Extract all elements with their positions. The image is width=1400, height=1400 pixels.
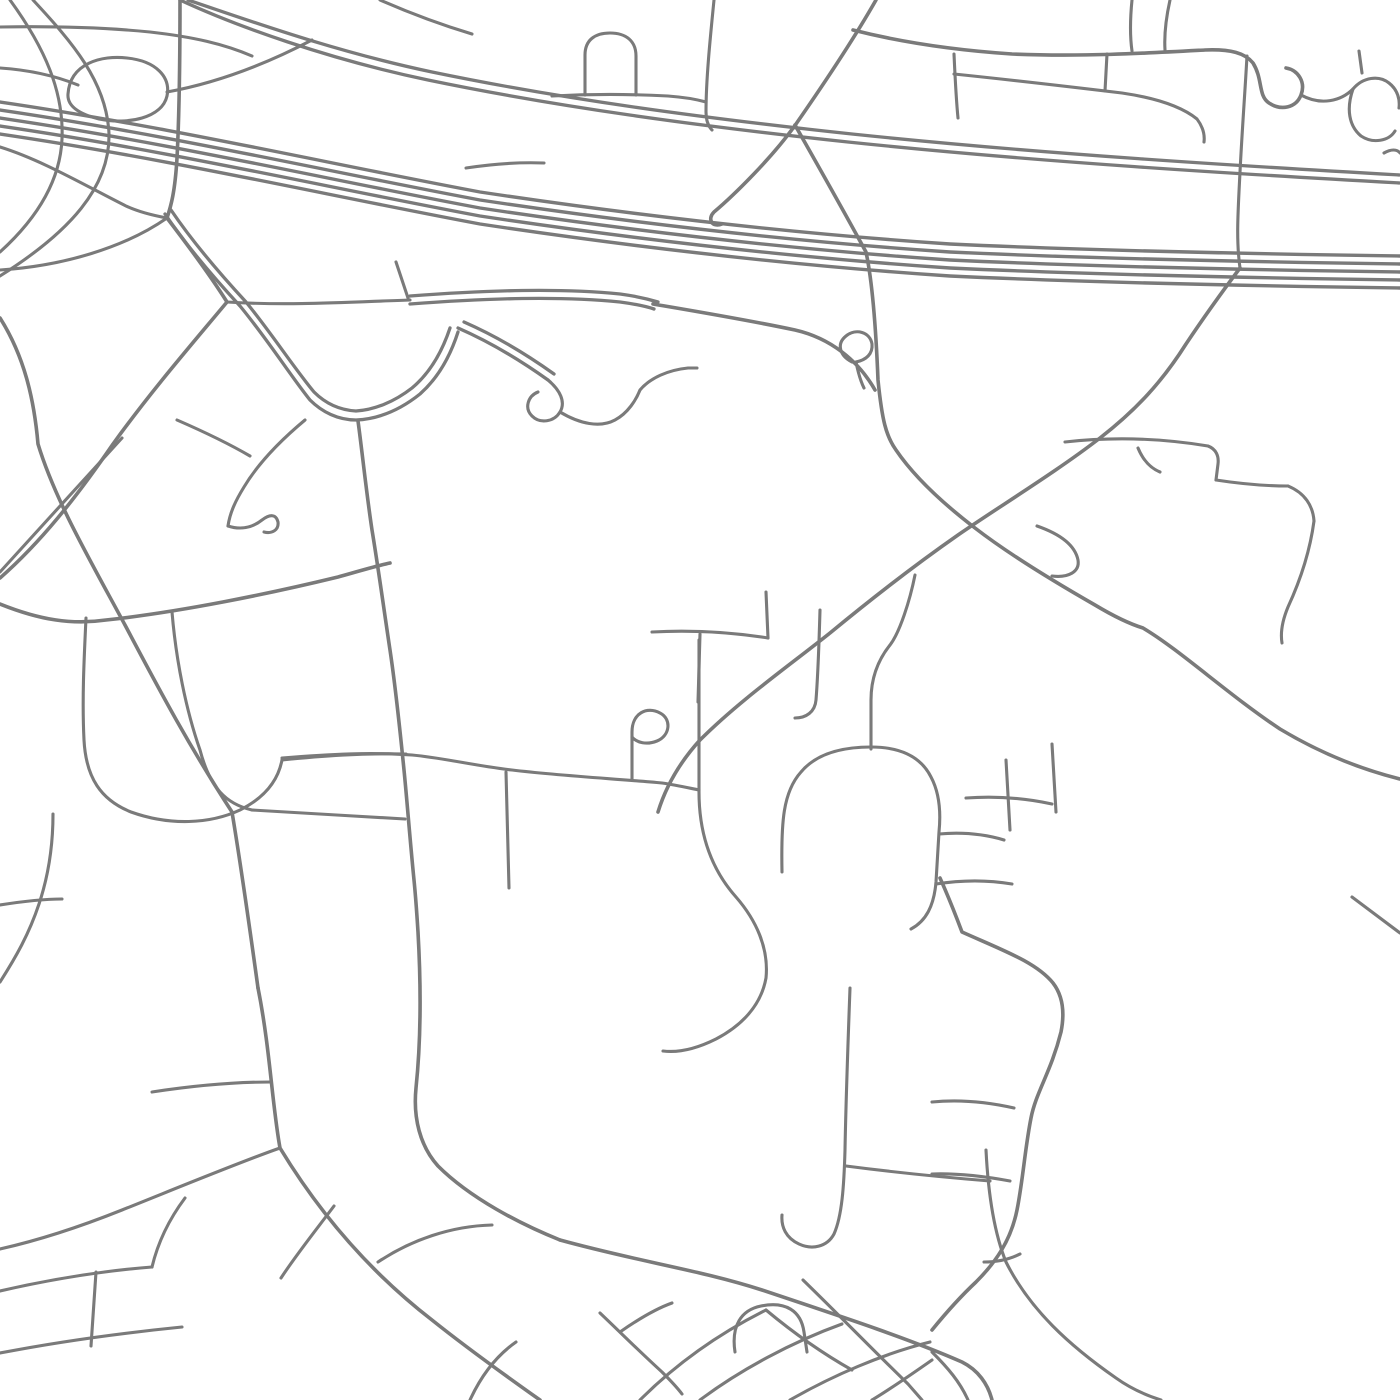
road-segment-local-roads <box>282 754 699 790</box>
road-segment-local-roads <box>939 833 1004 840</box>
road-segment-local-roads <box>281 1206 334 1278</box>
road-segment-local-roads <box>766 592 768 638</box>
road-segment-local-roads <box>663 640 766 1052</box>
road-segment-local-roads <box>632 710 668 780</box>
road-segment-local-roads <box>790 1342 930 1400</box>
road-segment-local-roads <box>1352 897 1400 933</box>
road-segment-local-roads <box>782 747 940 929</box>
road-segment-local-roads <box>1165 0 1170 50</box>
road-segment-local-roads <box>172 612 252 810</box>
road-segment-major-roads <box>167 218 227 302</box>
road-segment-local-roads <box>1349 89 1395 141</box>
road-segment-local-roads <box>856 362 864 388</box>
road-segment-local-roads <box>840 332 872 362</box>
road-segment-local-roads <box>1288 486 1314 521</box>
road-segment-local-roads <box>600 1313 682 1394</box>
road-segment-local-roads <box>1006 760 1010 830</box>
road-segment-local-roads <box>1037 526 1078 576</box>
road-segment-local-roads <box>506 772 509 888</box>
road-segment-local-roads <box>228 516 278 533</box>
road-segment-local-roads <box>782 988 850 1247</box>
road-segment-local-roads <box>986 1150 1161 1400</box>
road-segment-local-roads <box>954 74 1204 142</box>
road-segment-freeway-carriageways <box>0 126 1400 280</box>
road-segment-local-roads <box>0 1267 152 1291</box>
road-segment-local-roads <box>83 618 282 822</box>
road-segment-local-roads <box>252 810 405 819</box>
road-segment-local-roads <box>932 1352 968 1400</box>
road-segment-local-roads <box>1384 150 1400 153</box>
road-segment-local-roads <box>871 575 915 749</box>
road-segment-local-roads <box>380 0 472 34</box>
road-segment-local-roads <box>396 262 408 298</box>
road-segment-local-roads <box>954 54 958 118</box>
road-segment-major-roads <box>853 30 1303 107</box>
road-segment-major-roads <box>0 563 390 622</box>
road-segment-local-roads <box>795 610 820 718</box>
road-segment-local-roads <box>152 1082 271 1092</box>
road-segment-local-roads <box>1138 448 1160 472</box>
road-segment-local-roads <box>0 68 78 85</box>
road-segment-major-roads <box>0 318 258 988</box>
road-segment-freeway-carriageways <box>0 110 1400 264</box>
road-segment-local-roads <box>1238 56 1247 268</box>
road-segment-major-roads <box>795 125 1400 779</box>
road-segment-freeway-carriageways <box>0 134 1400 288</box>
road-segment-local-roads <box>1052 744 1056 812</box>
road-segment-local-roads <box>0 814 53 982</box>
road-segment-local-roads <box>228 420 305 526</box>
map-viewport <box>0 0 1400 1400</box>
road-segment-local-roads <box>152 1198 185 1267</box>
road-segment-local-roads <box>91 1272 96 1346</box>
road-segment-local-roads <box>766 1310 852 1370</box>
road-segment-major-roads <box>167 0 180 218</box>
road-segment-local-roads <box>652 631 768 638</box>
road-segment-divided-highway <box>180 0 1400 183</box>
road-segment-divided-highway <box>171 210 450 411</box>
road-segment-local-roads <box>936 881 1012 884</box>
road-segment-major-roads <box>711 0 876 225</box>
road-segment-local-roads <box>378 1225 492 1262</box>
road-segment-local-roads <box>932 1101 1014 1108</box>
road-segment-local-roads <box>0 438 122 572</box>
street-map <box>0 0 1400 1400</box>
road-segment-divided-highway <box>188 0 1400 175</box>
road-segment-local-roads <box>640 1310 766 1400</box>
road-segment-local-roads <box>470 1342 516 1400</box>
road-segment-divided-highway <box>410 298 654 309</box>
road-segment-local-roads <box>585 33 636 95</box>
road-segment-local-roads <box>68 57 168 121</box>
local-roads <box>0 0 1400 1400</box>
road-segment-local-roads <box>620 1303 672 1332</box>
road-segment-local-roads <box>466 163 544 168</box>
road-segment-major-roads <box>358 421 560 1240</box>
road-segment-local-roads <box>167 40 312 92</box>
road-segment-local-roads <box>1131 0 1133 51</box>
road-segment-local-roads <box>0 899 62 905</box>
road-segment-local-roads <box>846 1166 990 1181</box>
road-segment-freeway-carriageways <box>0 118 1400 272</box>
road-segment-local-roads <box>560 368 697 424</box>
road-segment-local-roads <box>227 300 410 304</box>
road-segment-local-roads <box>1105 54 1107 91</box>
road-segment-local-roads <box>177 420 250 456</box>
road-segment-local-roads <box>706 0 714 130</box>
road-segment-local-roads <box>1216 480 1288 486</box>
road-segment-divided-highway <box>458 328 548 380</box>
road-segment-local-roads <box>0 1148 280 1249</box>
road-segment-divided-highway <box>464 322 554 374</box>
road-segment-major-roads <box>658 268 1240 812</box>
road-segment-local-roads <box>1281 521 1314 643</box>
road-segment-local-roads <box>1359 51 1362 73</box>
road-segment-local-roads <box>528 380 563 421</box>
divided-highway <box>165 0 1400 420</box>
road-segment-major-roads <box>258 988 540 1400</box>
